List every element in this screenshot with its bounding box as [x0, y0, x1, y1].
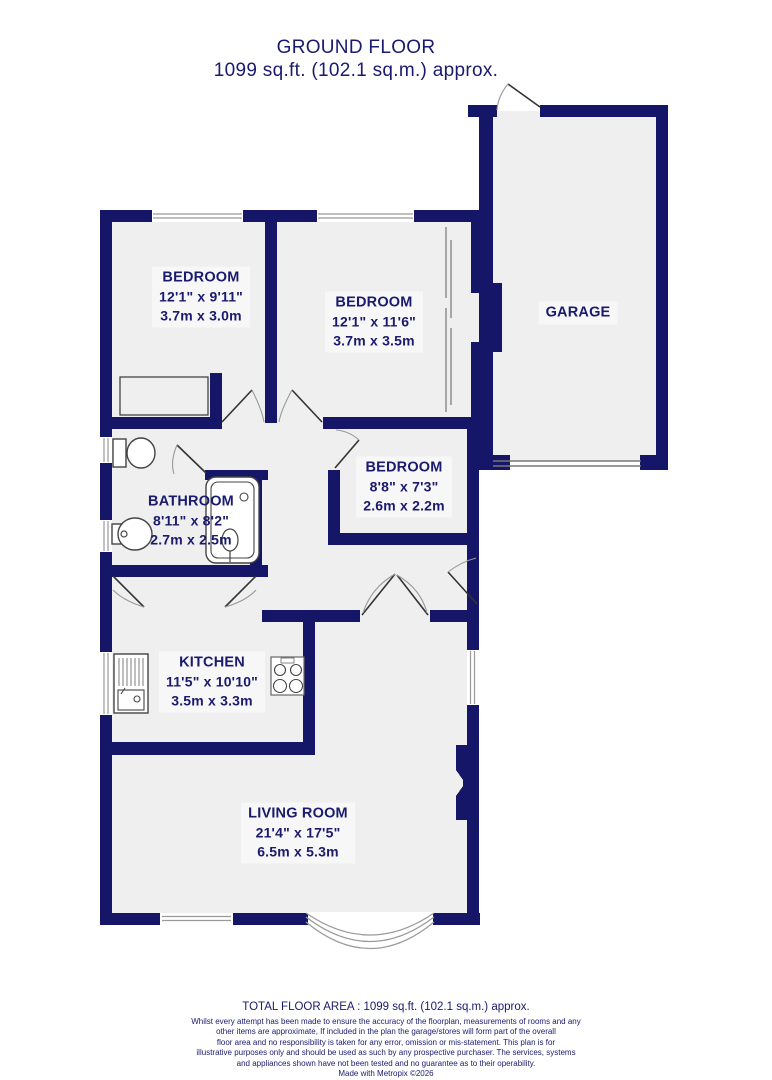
window-bathroom-left-1: [100, 437, 112, 463]
room-dims-imperial: 21'4" x 17'5": [248, 824, 348, 843]
room-name: GARAGE: [546, 304, 611, 323]
room-label-garage: GARAGE: [539, 302, 618, 325]
room-name: BEDROOM: [363, 459, 445, 478]
room-name: KITCHEN: [166, 654, 258, 673]
room-dims-metric: 3.5m x 3.3m: [166, 692, 258, 711]
window-bedroom1-top: [152, 210, 243, 222]
room-label-living-room: LIVING ROOM 21'4" x 17'5" 6.5m x 5.3m: [241, 803, 355, 864]
room-label-bedroom-2: BEDROOM 12'1" x 11'6" 3.7m x 3.5m: [325, 292, 423, 353]
room-name: BATHROOM: [148, 493, 234, 512]
disclaimer-line: Whilst every attempt has been made to en…: [0, 1017, 772, 1027]
toilet-fixture: [113, 438, 155, 468]
room-dims-imperial: 12'1" x 9'11": [159, 288, 243, 307]
hob-fixture: [271, 657, 304, 695]
disclaimer-line: illustrative purposes only and should be…: [0, 1048, 772, 1058]
room-dims-imperial: 11'5" x 10'10": [166, 673, 258, 692]
disclaimer-line: and appliances shown have not been teste…: [0, 1059, 772, 1069]
kitchen-sink-fixture: [114, 654, 148, 713]
room-dims-imperial: 8'11" x 8'2": [148, 512, 234, 531]
room-dims-imperial: 8'8" x 7'3": [363, 478, 445, 497]
metropix-credit: Made with Metropix ©2026: [0, 1069, 772, 1078]
floorplan-drawing: [0, 0, 772, 1080]
room-name: BEDROOM: [159, 269, 243, 288]
room-label-bathroom: BATHROOM 8'11" x 8'2" 2.7m x 2.5m: [141, 491, 241, 552]
window-livingroom-bottom: [160, 913, 233, 925]
disclaimer: Whilst every attempt has been made to en…: [0, 1017, 772, 1069]
room-dims-metric: 6.5m x 5.3m: [248, 843, 348, 862]
floorplan-page: GROUND FLOOR 1099 sq.ft. (102.1 sq.m.) a…: [0, 0, 772, 1080]
window-bedroom2-top: [317, 210, 414, 222]
total-floor-area: TOTAL FLOOR AREA : 1099 sq.ft. (102.1 sq…: [0, 1001, 772, 1013]
room-label-kitchen: KITCHEN 11'5" x 10'10" 3.5m x 3.3m: [159, 652, 265, 713]
room-dims-metric: 3.7m x 3.5m: [332, 332, 416, 351]
garage-door: [493, 461, 641, 466]
room-name: LIVING ROOM: [248, 805, 348, 824]
door-garage-pedestrian: [497, 84, 540, 110]
room-label-bedroom-3: BEDROOM 8'8" x 7'3" 2.6m x 2.2m: [356, 457, 452, 518]
room-dims-metric: 3.7m x 3.0m: [159, 307, 243, 326]
room-dims-imperial: 12'1" x 11'6": [332, 313, 416, 332]
room-label-bedroom-1: BEDROOM 12'1" x 9'11" 3.7m x 3.0m: [152, 267, 250, 328]
bay-window: [306, 912, 434, 949]
disclaimer-line: other items are approximate, If included…: [0, 1027, 772, 1037]
window-kitchen-left: [100, 652, 112, 715]
footer: TOTAL FLOOR AREA : 1099 sq.ft. (102.1 sq…: [0, 1001, 772, 1078]
window-hall-right: [467, 650, 479, 705]
room-dims-metric: 2.6m x 2.2m: [363, 497, 445, 516]
room-name: BEDROOM: [332, 294, 416, 313]
window-bathroom-left-2: [100, 520, 112, 552]
disclaimer-line: floor area and no responsibility is take…: [0, 1038, 772, 1048]
room-dims-metric: 2.7m x 2.5m: [148, 531, 234, 550]
